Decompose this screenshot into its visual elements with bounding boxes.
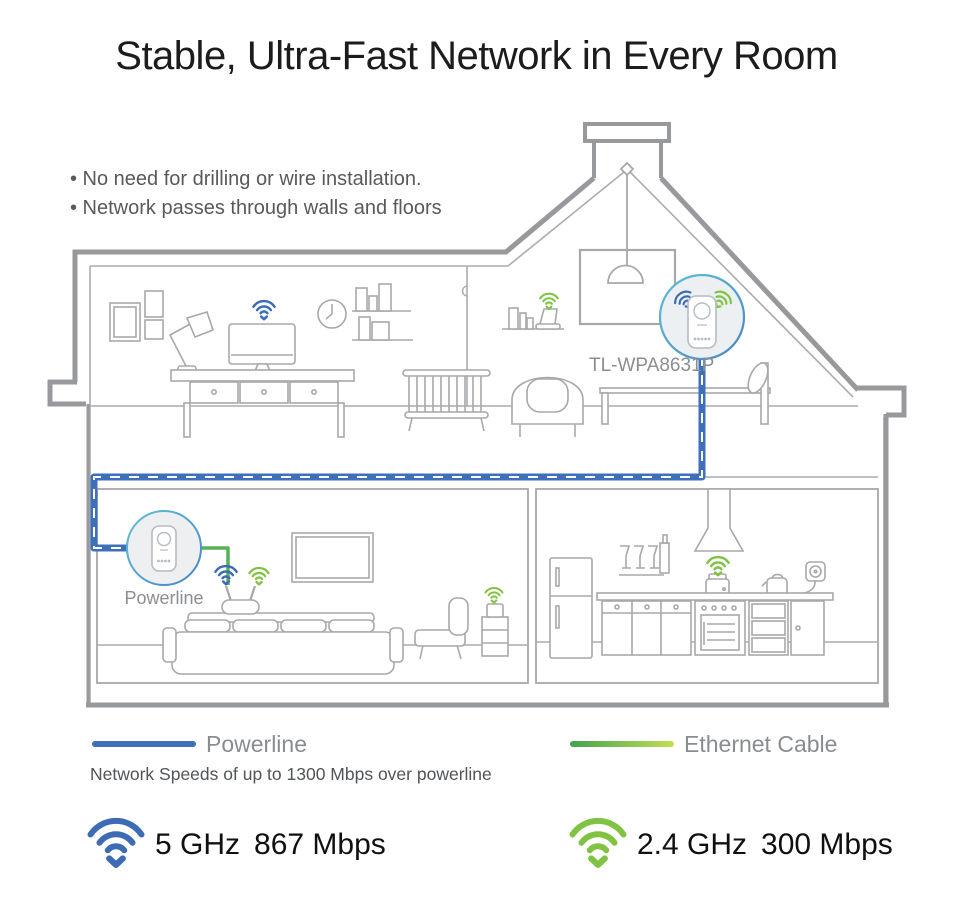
media-device: [487, 604, 503, 617]
wifi-icon-router-blue: [215, 566, 236, 584]
wall-socket: [789, 562, 825, 595]
product-diagram-page: Stable, Ultra-Fast Network in Every Room…: [0, 0, 953, 913]
pendant-lamp: [580, 163, 675, 324]
wine-shelf: [619, 535, 669, 575]
tv: [292, 533, 373, 582]
speed-5ghz: 5 GHz867 Mbps: [155, 828, 386, 862]
powerline-adapter-top: [660, 275, 744, 359]
fridge: [550, 558, 592, 658]
attic-armchair: [512, 378, 583, 438]
desk-lamp: [170, 312, 213, 371]
computer-monitor: [229, 324, 295, 372]
powerline-legend-label: Powerline: [206, 731, 307, 758]
wifi-icon-5ghz: [91, 821, 142, 865]
wall-shelves: [352, 284, 413, 340]
powerline-legend-line: [92, 741, 196, 747]
oven: [695, 601, 745, 655]
wifi-icon-cabinet-green: [486, 588, 503, 603]
feature-bullets: • No need for drilling or wire installat…: [70, 165, 442, 222]
wifi-icon-monitor-blue: [253, 301, 274, 319]
crib: [403, 370, 490, 431]
wifi-icon-laptop-green: [540, 294, 558, 309]
speed-24ghz: 2.4 GHz300 Mbps: [637, 828, 893, 862]
drawer-stack: [749, 601, 788, 655]
wifi-router: [222, 586, 259, 614]
kitchen-counter: [597, 593, 833, 655]
adapter-device: [688, 296, 716, 348]
bullet-item: • No need for drilling or wire installat…: [70, 165, 442, 194]
ethernet-legend-line: [570, 741, 674, 747]
adapter-device: [152, 526, 176, 571]
bullet-item: • Network passes through walls and floor…: [70, 194, 442, 223]
laptop-shelf: [502, 308, 564, 329]
powerline-speed-note: Network Speeds of up to 1300 Mbps over p…: [90, 764, 492, 785]
armchair: [415, 598, 468, 659]
sofa: [163, 613, 403, 674]
range-hood: [695, 489, 743, 551]
side-cabinet: [482, 604, 508, 656]
desk: [171, 370, 354, 437]
freq-24ghz: 2.4 GHz: [637, 828, 747, 861]
freq-5ghz: 5 GHz: [155, 828, 240, 861]
wifi-icon-kitchen-green: [707, 557, 728, 575]
rate-24ghz: 300 Mbps: [761, 828, 893, 861]
adapter-model-label: TL-WPA8631P: [589, 355, 714, 377]
powerline-adapter-bottom: [127, 511, 201, 585]
kitchen-furniture: [550, 489, 833, 658]
wifi-icon-24ghz: [573, 821, 624, 865]
ethernet-legend-label: Ethernet Cable: [684, 731, 837, 758]
rate-5ghz: 867 Mbps: [254, 828, 386, 861]
page-title: Stable, Ultra-Fast Network in Every Room: [0, 34, 953, 79]
wifi-icon-router-green: [249, 568, 268, 584]
laptop: [536, 309, 560, 329]
wall-clock: [318, 300, 346, 328]
tall-cabinet: [791, 601, 824, 655]
adapter-powerline-label: Powerline: [104, 588, 224, 609]
